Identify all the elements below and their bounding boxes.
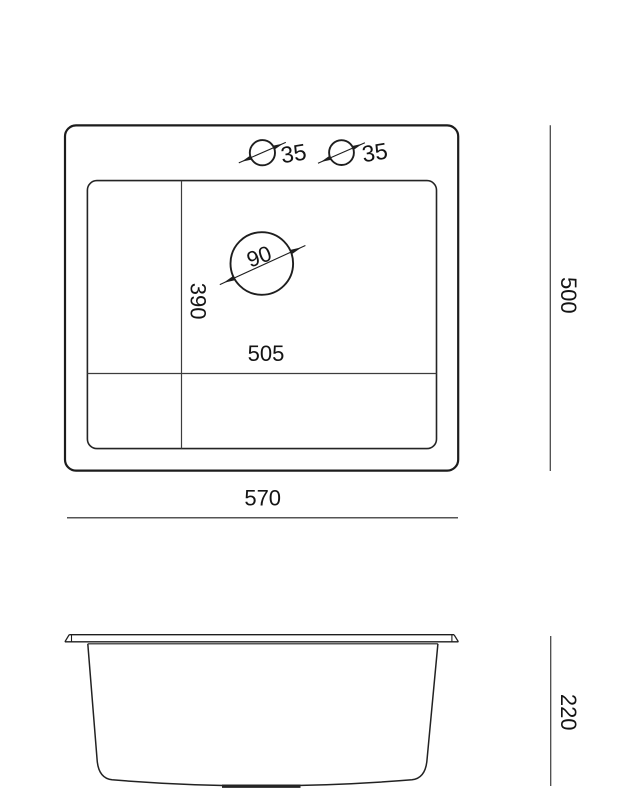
svg-text:390: 390 — [186, 283, 211, 320]
svg-text:220: 220 — [556, 694, 581, 731]
svg-text:505: 505 — [248, 341, 285, 366]
svg-text:35: 35 — [279, 139, 308, 169]
svg-text:500: 500 — [556, 277, 581, 314]
svg-text:570: 570 — [244, 485, 281, 510]
svg-text:35: 35 — [360, 138, 389, 168]
